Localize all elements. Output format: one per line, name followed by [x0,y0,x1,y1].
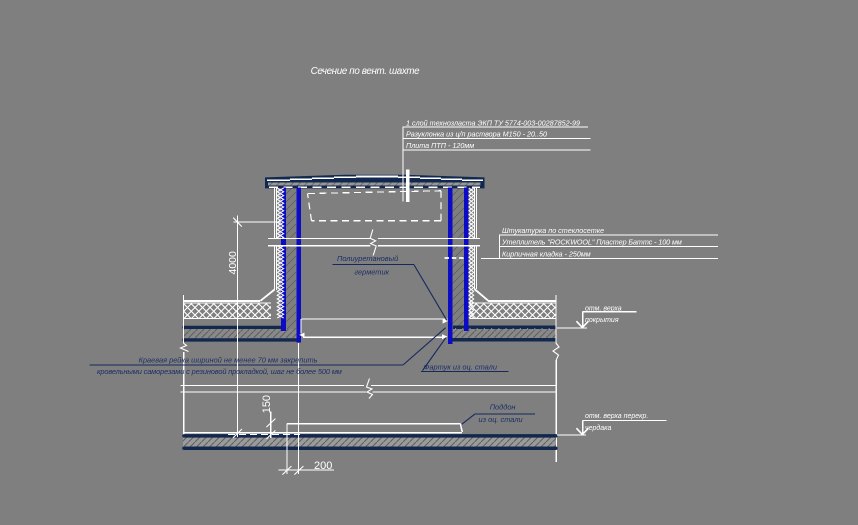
svg-text:4000: 4000 [227,251,239,275]
svg-text:Плита ПТП - 120мм: Плита ПТП - 120мм [406,141,474,150]
svg-text:Краевая рейка шириной не менее: Краевая рейка шириной не менее 70 мм зак… [139,355,318,364]
svg-text:Утеплитель "ROCKWOOL" Пластер: Утеплитель "ROCKWOOL" Пластер Баттс - 10… [501,238,682,247]
svg-text:отм. верха: отм. верха [585,305,622,312]
svg-text:покрытия: покрытия [585,317,619,324]
svg-text:отм. верха перекр.: отм. верха перекр. [585,413,648,420]
svg-text:чердака: чердака [585,424,611,432]
svg-text:200: 200 [314,460,332,472]
svg-text:150: 150 [261,395,273,413]
svg-text:из оц. стали: из оц. стали [479,415,523,424]
svg-text:Полиуретановый: Полиуретановый [337,254,398,263]
svg-text:Сечение по вент. шахте: Сечение по вент. шахте [311,66,421,77]
svg-text:Разуклонка из ц/п раствора М15: Разуклонка из ц/п раствора М150 - 20..50 [406,130,547,139]
svg-text:Фартук из оц. стали: Фартук из оц. стали [424,362,497,371]
svg-text:кровельными саморезами с резин: кровельными саморезами с резиновой прокл… [97,367,342,376]
svg-text:герметик: герметик [355,268,390,277]
svg-text:Штукатурка по стеклосетке: Штукатурка по стеклосетке [502,226,604,235]
svg-text:Поддон: Поддон [490,403,516,412]
svg-text:Кирпичная кладка - 250мм: Кирпичная кладка - 250мм [502,249,591,258]
svg-text:1 слой технозласта ЭКП ТУ 5774: 1 слой технозласта ЭКП ТУ 5774-003-00287… [406,118,580,127]
